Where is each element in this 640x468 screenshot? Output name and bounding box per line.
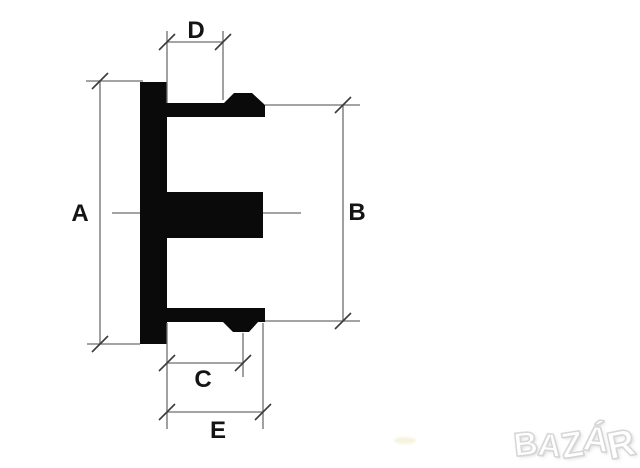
dim-label-c: C bbox=[194, 366, 211, 393]
part-top-flange bbox=[167, 93, 265, 117]
diagram-svg: A B C D E bbox=[0, 0, 640, 468]
dim-label-d: D bbox=[187, 17, 204, 44]
drawing-canvas: A B C D E B A Z Á R bbox=[0, 0, 640, 468]
part-silhouette bbox=[140, 82, 265, 344]
dim-label-a: A bbox=[71, 200, 88, 227]
dim-label-b: B bbox=[348, 199, 365, 226]
part-middle-hub bbox=[167, 192, 263, 238]
part-vertical-bar bbox=[140, 82, 167, 344]
part-bottom-flange bbox=[167, 308, 265, 332]
dim-label-e: E bbox=[210, 417, 226, 444]
